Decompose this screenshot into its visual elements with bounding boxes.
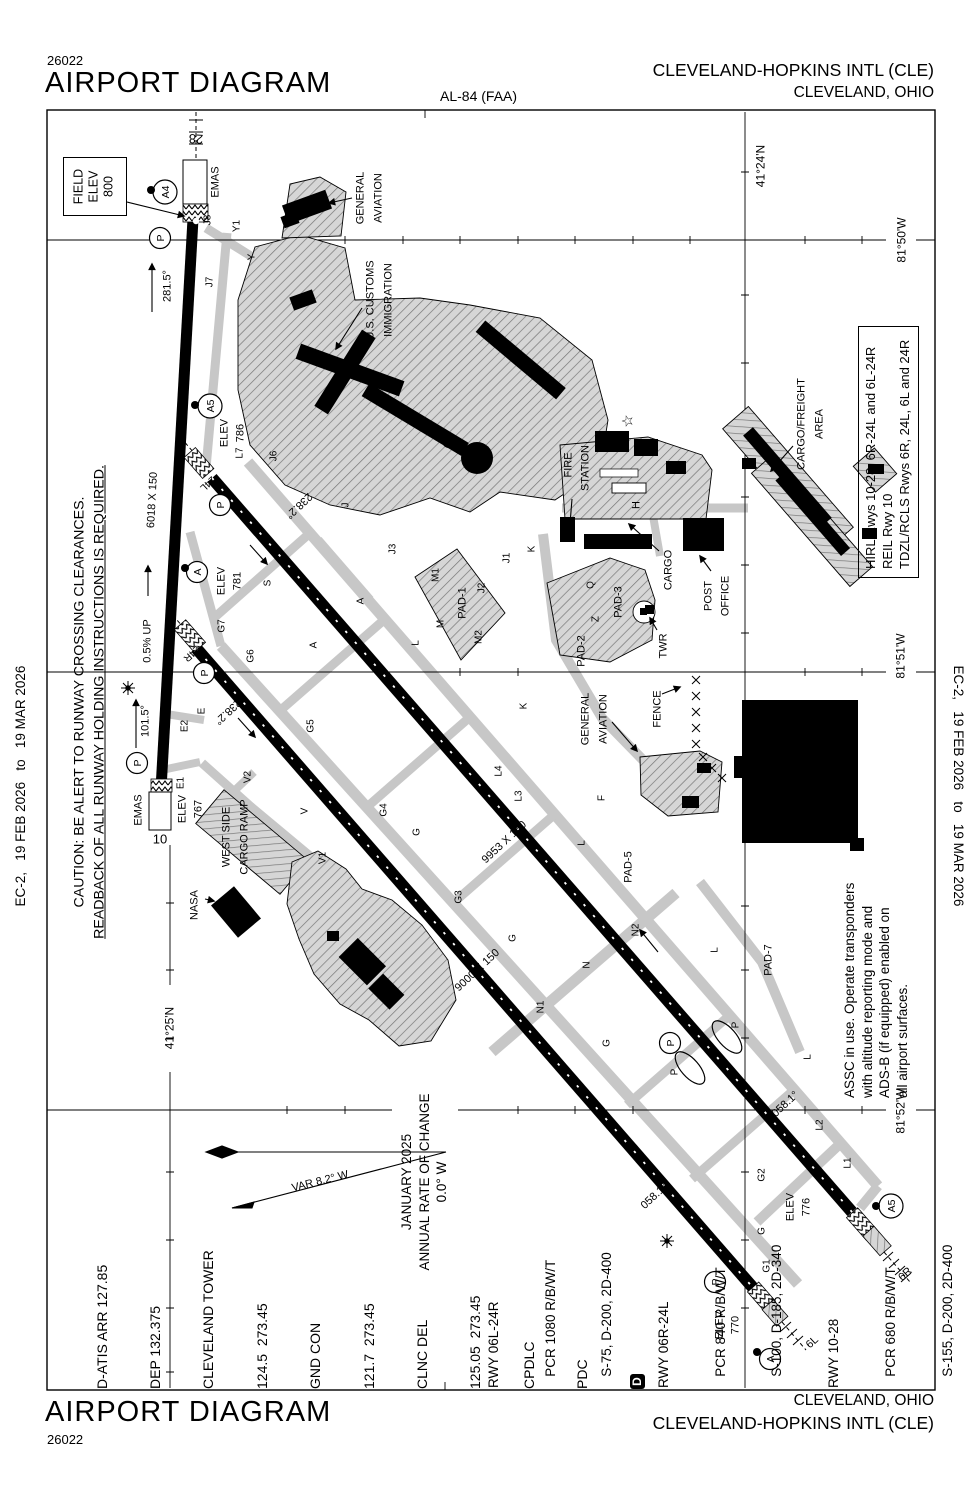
comm-line: GND CON <box>307 1217 325 1389</box>
map-label-68: Z <box>591 616 602 622</box>
footer-city: CLEVELAND, OHIO <box>794 1392 934 1410</box>
map-label-39: E <box>197 707 208 714</box>
map-label-71: CARGO <box>663 549 675 590</box>
helipad-building <box>612 483 646 493</box>
runway-data-line: PCR 840 R/B/W/T <box>712 1212 731 1388</box>
svg-text:P: P <box>132 759 144 766</box>
runway-data-line: RWY 10-28 <box>825 1212 844 1388</box>
map-label-53: V1 <box>318 851 329 864</box>
map-label-81: AVIATION <box>598 694 610 744</box>
left-margin-effective-dates: EC-2, 19 FEB 2026 to 19 MAR 2026 <box>13 576 31 996</box>
runway-data-block: RWY 06L-24R PCR 1080 R/B/W/T S-75, D-200… <box>447 1212 617 1388</box>
map-label-58: G3 <box>454 890 465 904</box>
map-label-48: 767 <box>193 800 205 818</box>
runway-data-line: RWY 06R-24L <box>655 1212 674 1388</box>
map-label-35: G7 <box>217 619 228 633</box>
map-label-18: J <box>341 503 352 508</box>
map-label-8: AVIATION <box>373 173 385 223</box>
circled-symbol-a: A <box>187 562 208 583</box>
tower-symbol <box>645 605 654 614</box>
lon-81-50: 81°50'W <box>895 217 909 263</box>
beacon-star: ☆ <box>620 414 637 427</box>
assc-line: with altitude reporting mode and <box>859 826 877 1098</box>
emas-10-chevrons <box>151 779 172 792</box>
footer-title: AIRPORT DIAGRAM <box>45 1396 331 1429</box>
map-label-28: L <box>411 640 422 646</box>
large-building <box>742 700 858 843</box>
rwy-10-heading: 101.5° <box>140 705 152 737</box>
runway-data-line: PCR 1080 R/B/W/T <box>542 1212 561 1388</box>
lighting-box-wrap: HIRL Rwys 10-28, 6R-24L and 6L-24R REIL … <box>858 326 922 578</box>
map-label-72: TWR <box>658 633 670 658</box>
map-label-51: CARGO RAMP <box>239 799 251 874</box>
airport-diagram-page: { "header": { "cycle": "26022", "title":… <box>0 0 978 1500</box>
map-label-94: L2 <box>815 1119 826 1131</box>
map-label-73: POST <box>703 581 715 611</box>
light-position-dot <box>872 1202 880 1210</box>
runway-data-line: S-100, D-185, 2D-340 <box>768 1212 787 1388</box>
map-label-31: ELEV <box>216 566 228 595</box>
header-city: CLEVELAND, OHIO <box>794 84 934 102</box>
map-label-10: IMMIGRATION <box>383 263 395 337</box>
circled-symbol-p: P <box>127 753 148 774</box>
circled-symbol-p: P <box>150 228 171 249</box>
map-label-64: L3 <box>514 790 525 802</box>
map-label-91: P <box>731 1021 742 1028</box>
light-position-dot <box>181 564 189 572</box>
map-label-21: J2 <box>477 582 488 593</box>
true-north-diamond <box>206 1146 238 1158</box>
circled-symbol-a4: A4 <box>153 180 177 204</box>
footer-cycle: 26022 <box>47 1432 83 1447</box>
map-label-41: G5 <box>306 719 317 733</box>
assc-line: ASSC in use. Operate transponders <box>841 826 859 1098</box>
circled-symbol-a5: A5 <box>198 394 222 418</box>
field-elev-line2: ELEV <box>87 162 102 212</box>
svg-text:A5: A5 <box>205 399 217 412</box>
emas-28-label: EMAS <box>210 166 222 197</box>
map-label-22: K <box>527 545 538 552</box>
map-label-24: M1 <box>431 568 442 582</box>
map-label-26: M <box>436 620 447 628</box>
terminal-apron <box>238 235 608 515</box>
map-label-13: ELEV <box>219 418 231 447</box>
map-label-23: K <box>519 702 530 709</box>
slope-label: 0.5% UP <box>142 619 154 662</box>
map-label-70: PAD-2 <box>576 635 588 667</box>
comm-line: 124.5 273.45 <box>254 1217 272 1389</box>
light-position-dot <box>191 401 199 409</box>
map-label-87: N2 <box>631 923 642 936</box>
map-label-5: J7 <box>205 276 216 287</box>
rwy-10-number: 10 <box>153 832 167 847</box>
map-label-82: FENCE <box>652 690 664 727</box>
map-label-50: WEST SIDE <box>221 807 233 867</box>
svg-text:P: P <box>215 501 227 508</box>
map-label-92: P <box>670 1068 681 1075</box>
lat-41-25: 41°25'N <box>163 1007 177 1049</box>
map-label-80: GENERAL <box>580 693 592 746</box>
lighting-line: REIL Rwy 10 <box>880 335 897 569</box>
field-elev-box: FIELD ELEV 800 <box>63 157 127 216</box>
caution-line1: CAUTION: BE ALERT TO RUNWAY CROSSING CLE… <box>71 420 91 985</box>
map-label-44: E1 <box>176 776 187 789</box>
map-label-57: G <box>412 828 423 836</box>
runway-data-line: PCR 680 R/B/W/T <box>882 1212 901 1388</box>
map-label-95: L1 <box>843 1157 854 1169</box>
map-label-56: G4 <box>379 803 390 817</box>
emas-10-label: EMAS <box>133 794 145 825</box>
circled-symbol-p: P <box>660 1033 681 1054</box>
emas-10-pad <box>149 792 171 830</box>
rwy-6l-heading: 058.1° <box>639 1181 671 1212</box>
map-label-67: Q <box>586 581 597 589</box>
comm-frequencies: D-ATIS ARR 127.85 DEP 132.375 CLEVELAND … <box>58 1217 254 1389</box>
map-label-15: L7 <box>235 447 246 459</box>
svg-text:P: P <box>199 669 211 676</box>
map-label-19: J3 <box>388 543 399 554</box>
map-label-79: AREA <box>814 408 826 439</box>
emas-28-pad <box>183 160 207 204</box>
svg-text:A: A <box>192 568 204 575</box>
map-label-76: STATION <box>580 445 592 491</box>
lighting-line: HIRL Rwys 10-28, 6R-24L and 6L-24R <box>863 335 880 569</box>
map-label-85: N1 <box>536 1000 547 1013</box>
svg-text:A5: A5 <box>886 1199 898 1212</box>
circled-symbol-p: P <box>194 663 215 684</box>
map-label-32: 781 <box>232 572 244 590</box>
assc-line: all airport surfaces. <box>894 826 912 1098</box>
assc-line: ADS-B (if equipped) enabled on <box>876 826 894 1098</box>
map-label-2: J8 <box>203 214 214 225</box>
map-label-86: N <box>582 961 593 968</box>
map-label-17: J6 <box>269 450 280 461</box>
map-label-97: G2 <box>757 1168 768 1182</box>
lon-81-51: 81°51'W <box>894 633 908 679</box>
runway-data-line: S-155, D-200, 2D-400 <box>939 1212 958 1388</box>
header-cycle: 26022 <box>47 53 83 68</box>
field-elev-line1: FIELD <box>72 162 87 212</box>
map-label-25: PAD-1 <box>457 587 469 619</box>
fire-station-slot <box>600 469 638 477</box>
map-label-52: V <box>300 807 311 814</box>
runway-data-line: RWY 06L-24R <box>485 1212 504 1388</box>
map-label-49: V2 <box>243 770 254 783</box>
comm-line: D-ATIS ARR 127.85 <box>94 1217 112 1389</box>
map-label-78: CARGO/FREIGHT <box>796 378 808 470</box>
map-label-20: J1 <box>502 552 513 563</box>
map-label-4: Y <box>247 253 258 260</box>
comm-line: CLNC DEL <box>414 1217 432 1389</box>
caution-line2: READBACK OF ALL RUNWAY HOLDING INSTRUCTI… <box>90 420 110 985</box>
map-label-14: 786 <box>235 424 247 442</box>
chart-code: AL-84 (FAA) <box>440 88 517 104</box>
map-label-47: ELEV <box>177 794 189 823</box>
assc-note: ASSC in use. Operate transponders with a… <box>841 826 915 1098</box>
circled-symbol-p: P <box>210 495 231 516</box>
map-label-66: F <box>597 795 608 801</box>
svg-text:P: P <box>155 234 167 241</box>
map-label-54: NASA <box>189 889 201 920</box>
map-label-34: A <box>356 597 367 604</box>
map-label-83: PAD-5 <box>623 851 635 883</box>
comm-line: 121.7 273.45 <box>361 1217 379 1389</box>
rwy-28-number: 28 <box>188 131 203 147</box>
magnetic-north-halfarrow <box>232 1202 254 1208</box>
rwy-24r-heading: 238.2° <box>212 696 244 727</box>
comm-line: CLEVELAND TOWER <box>200 1217 218 1389</box>
map-label-75: FIRE <box>563 452 575 477</box>
map-label-74: OFFICE <box>720 576 732 616</box>
map-label-84: PAD-7 <box>763 944 775 976</box>
svg-text:P: P <box>665 1039 677 1046</box>
map-label-27: M2 <box>474 630 485 644</box>
lat-41-24: 41°24'N <box>754 145 768 187</box>
map-label-89: L <box>803 1054 814 1060</box>
runway-data-line: S-75, D-200, 2D-400 <box>598 1212 617 1388</box>
map-label-69: PAD-3 <box>613 586 625 618</box>
rwy-1028-dim: 6018 X 150 <box>145 472 160 529</box>
comm-line: DEP 132.375 <box>147 1217 165 1389</box>
page-title: AIRPORT DIAGRAM <box>45 67 331 100</box>
ga-south-apron <box>640 751 722 816</box>
caution-note: CAUTION: BE ALERT TO RUNWAY CROSSING CLE… <box>71 420 113 985</box>
map-label-37: G6 <box>246 649 257 663</box>
header-airport-name: CLEVELAND-HOPKINS INTL (CLE) <box>653 60 934 81</box>
rwy-28-heading: 281.5° <box>162 270 174 302</box>
svg-text:A4: A4 <box>160 185 172 198</box>
right-margin-effective-dates: EC-2, 19 FEB 2026 to 19 MAR 2026 <box>948 576 966 996</box>
map-label-3: Y1 <box>232 219 243 232</box>
light-position-dot <box>147 186 155 194</box>
field-elev-value: 800 <box>102 162 117 212</box>
map-label-59: G <box>508 934 519 942</box>
map-label-65: L <box>577 840 588 846</box>
map-label-88: L <box>710 947 721 953</box>
lighting-box: HIRL Rwys 10-28, 6R-24L and 6L-24R REIL … <box>858 326 919 578</box>
footer-airport-name: CLEVELAND-HOPKINS INTL (CLE) <box>653 1413 934 1434</box>
map-label-77: H <box>631 501 643 509</box>
starburst-rwy10 <box>121 681 135 695</box>
map-label-33: A <box>309 641 320 648</box>
lighting-line: TDZL/RCLS Rwys 6R, 24L, 6L and 24R <box>897 335 914 569</box>
map-label-7: GENERAL <box>355 172 367 225</box>
map-label-38: E2 <box>180 719 191 732</box>
var-label: VAR 8.2° W <box>291 1169 351 1195</box>
map-label-30: S <box>263 579 274 586</box>
map-label-9: U.S. CUSTOMS <box>365 260 377 339</box>
map-label-63: L4 <box>494 765 505 777</box>
map-label-90: G <box>602 1039 613 1047</box>
